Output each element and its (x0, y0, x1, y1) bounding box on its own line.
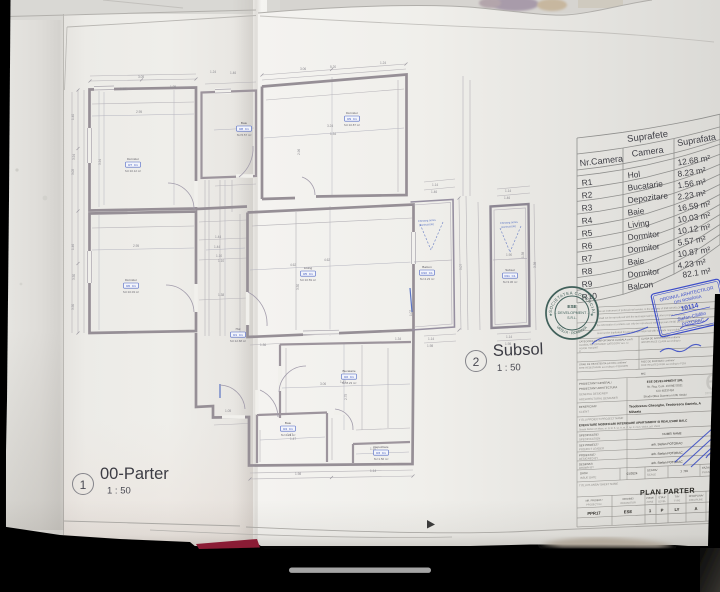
svg-text:R6: R6 (581, 240, 593, 251)
svg-text:★: ★ (590, 312, 594, 317)
svg-text:Living: Living (304, 266, 312, 270)
svg-text:SU:8.23 m²: SU:8.23 m² (342, 381, 357, 385)
svg-text:SU:5.57 m²: SU:5.57 m² (237, 133, 252, 137)
svg-text:R7: R7 (581, 253, 593, 264)
svg-text:1.05: 1.05 (225, 409, 231, 413)
svg-text:ETAJ/: ETAJ/ (659, 496, 666, 499)
svg-text:TIP/: TIP/ (675, 495, 680, 498)
svg-text:3.05: 3.05 (138, 75, 144, 79)
svg-text:R3 C1: R3 C1 (376, 451, 386, 455)
svg-text:4.62: 4.62 (324, 258, 330, 262)
svg-text:Hol: Hol (236, 327, 241, 331)
svg-text:1.14: 1.14 (428, 337, 434, 341)
svg-text:1 : 50: 1 : 50 (107, 486, 131, 497)
svg-text:★: ★ (549, 312, 553, 317)
svg-text:SU:10.12 m²: SU:10.12 m² (125, 169, 141, 173)
svg-text:R4 C1: R4 C1 (283, 427, 293, 431)
svg-text:C: C (579, 350, 581, 353)
svg-text:MIC: MIC (641, 372, 646, 375)
svg-text:BENEFICIAR/: BENEFICIAR/ (579, 404, 597, 409)
svg-text:1.34: 1.34 (330, 132, 336, 136)
svg-text:R8 C1: R8 C1 (239, 127, 249, 131)
svg-text:CLIENT: CLIENT (579, 409, 589, 413)
svg-text:Baie: Baie (627, 255, 645, 267)
svg-text:3.50: 3.50 (71, 304, 75, 310)
svg-text:5.20: 5.20 (330, 65, 336, 69)
svg-text:R1 C1: R1 C1 (233, 333, 243, 337)
svg-text:3.50: 3.50 (72, 274, 76, 280)
svg-text:2: 2 (473, 355, 480, 369)
svg-text:1.14: 1.14 (370, 469, 376, 473)
svg-text:R3: R3 (581, 202, 593, 213)
svg-text:4.62: 4.62 (290, 263, 296, 267)
svg-text:ISSUE DATE: ISSUE DATE (580, 475, 597, 480)
svg-text:1.07: 1.07 (409, 310, 413, 316)
svg-text:3.06: 3.06 (300, 67, 306, 71)
svg-text:CUI 45237452: CUI 45237452 (656, 388, 674, 393)
svg-text:SU:16.59 m²: SU:16.59 m² (300, 278, 316, 282)
svg-text:1.34: 1.34 (395, 337, 401, 341)
svg-text:3.06: 3.06 (320, 382, 326, 386)
svg-text:1.24: 1.24 (380, 61, 386, 65)
svg-text:R5 C1: R5 C1 (303, 272, 313, 276)
svg-text:1.46: 1.46 (230, 71, 236, 75)
svg-text:1.90: 1.90 (506, 253, 512, 257)
svg-text:DRAWN BY: DRAWN BY (579, 465, 594, 470)
svg-text:Balcon: Balcon (422, 265, 432, 269)
svg-text:SU:3.36 m²: SU:3.36 m² (503, 280, 518, 284)
svg-text:Dormitor: Dormitor (346, 111, 358, 115)
svg-text:R5: R5 (581, 228, 593, 239)
svg-text:Subsol: Subsol (505, 268, 515, 272)
svg-text:ESE: ESE (567, 304, 576, 309)
svg-text:SU:12.68 m²: SU:12.68 m² (230, 339, 246, 343)
svg-text:Bucatarie: Bucatarie (342, 369, 355, 373)
svg-text:1 : 50: 1 : 50 (497, 362, 521, 374)
svg-text:S.R.L.: S.R.L. (567, 316, 576, 320)
svg-text:SU:10.03 m²: SU:10.03 m² (123, 290, 139, 294)
svg-text:1.10: 1.10 (218, 259, 224, 263)
svg-text:3.38: 3.38 (533, 262, 537, 268)
svg-text:1.14: 1.14 (432, 183, 438, 187)
svg-text:- DEVELOPMENT -: - DEVELOPMENT - (555, 311, 589, 315)
svg-text:R2: R2 (581, 189, 593, 200)
svg-text:00-Parter: 00-Parter (100, 465, 169, 483)
svg-text:3.24: 3.24 (327, 124, 333, 128)
svg-text:1.98: 1.98 (295, 472, 301, 476)
svg-text:Subsol: Subsol (493, 340, 544, 360)
svg-text:R2 C1: R2 C1 (344, 375, 354, 379)
svg-text:3.94: 3.94 (72, 154, 76, 160)
svg-text:1.44: 1.44 (215, 235, 221, 239)
svg-text:1.10: 1.10 (120, 87, 126, 91)
svg-text:R1: R1 (581, 177, 593, 188)
svg-text:1.24: 1.24 (210, 70, 216, 74)
svg-text:2.96: 2.96 (297, 149, 301, 155)
svg-text:2.95: 2.95 (133, 244, 139, 248)
svg-text:Baie: Baie (285, 421, 291, 425)
svg-text:R6 C1: R6 C1 (126, 284, 136, 288)
svg-text:Depozitare: Depozitare (374, 445, 389, 449)
svg-text:SU:4.23 m²: SU:4.23 m² (420, 277, 435, 281)
svg-text:1.47: 1.47 (290, 437, 296, 441)
svg-text:SU:2.23 m²: SU:2.23 m² (281, 433, 296, 437)
svg-text:1.46: 1.46 (431, 190, 437, 194)
svg-text:1.98: 1.98 (427, 344, 433, 348)
svg-text:1: 1 (80, 478, 87, 492)
svg-text:1.40: 1.40 (71, 114, 75, 120)
svg-text:1.46: 1.46 (71, 244, 75, 250)
svg-text:R4: R4 (581, 215, 593, 226)
svg-text:3.50: 3.50 (296, 284, 300, 290)
svg-text:2.75: 2.75 (344, 394, 348, 400)
svg-text:1.14: 1.14 (506, 335, 512, 339)
svg-text:1.46: 1.46 (504, 196, 510, 200)
svg-text:SU:10.87 m²: SU:10.87 m² (344, 123, 360, 127)
svg-text:1.38: 1.38 (218, 293, 224, 297)
svg-text:Baie: Baie (627, 206, 645, 218)
svg-text:Dormitor: Dormitor (127, 157, 139, 161)
svg-text:1.14: 1.14 (505, 189, 511, 193)
svg-text:SU:1.56 m²: SU:1.56 m² (374, 457, 389, 461)
svg-text:R11 C1: R11 C1 (504, 274, 515, 278)
svg-text:Dormitor: Dormitor (125, 278, 137, 282)
svg-text:Mihaela: Mihaela (629, 410, 641, 415)
svg-text:R8: R8 (581, 266, 593, 277)
svg-text:2.95: 2.95 (136, 110, 142, 114)
svg-text:1.44: 1.44 (214, 245, 220, 249)
svg-text:Baie: Baie (241, 121, 247, 125)
svg-text:1.10: 1.10 (216, 254, 222, 258)
svg-text:R7 C1: R7 C1 (128, 163, 138, 167)
svg-text:SCALE: SCALE (647, 472, 656, 476)
svg-text:1.36: 1.36 (260, 343, 266, 347)
svg-text:R10 C1: R10 C1 (421, 271, 433, 275)
svg-text:Hol: Hol (627, 169, 641, 180)
svg-text:1 : 50: 1 : 50 (680, 469, 688, 473)
svg-text:3.05: 3.05 (71, 169, 75, 175)
svg-text:ZONA/: ZONA/ (646, 496, 654, 499)
svg-text:5.07: 5.07 (459, 264, 463, 270)
svg-text:1.95: 1.95 (170, 85, 176, 89)
svg-text:01/2024: 01/2024 (627, 471, 638, 476)
svg-text:R9: R9 (581, 278, 593, 289)
svg-text:3.94: 3.94 (98, 159, 102, 165)
svg-text:1.38: 1.38 (521, 252, 525, 258)
svg-text:R9 C1: R9 C1 (347, 117, 357, 121)
